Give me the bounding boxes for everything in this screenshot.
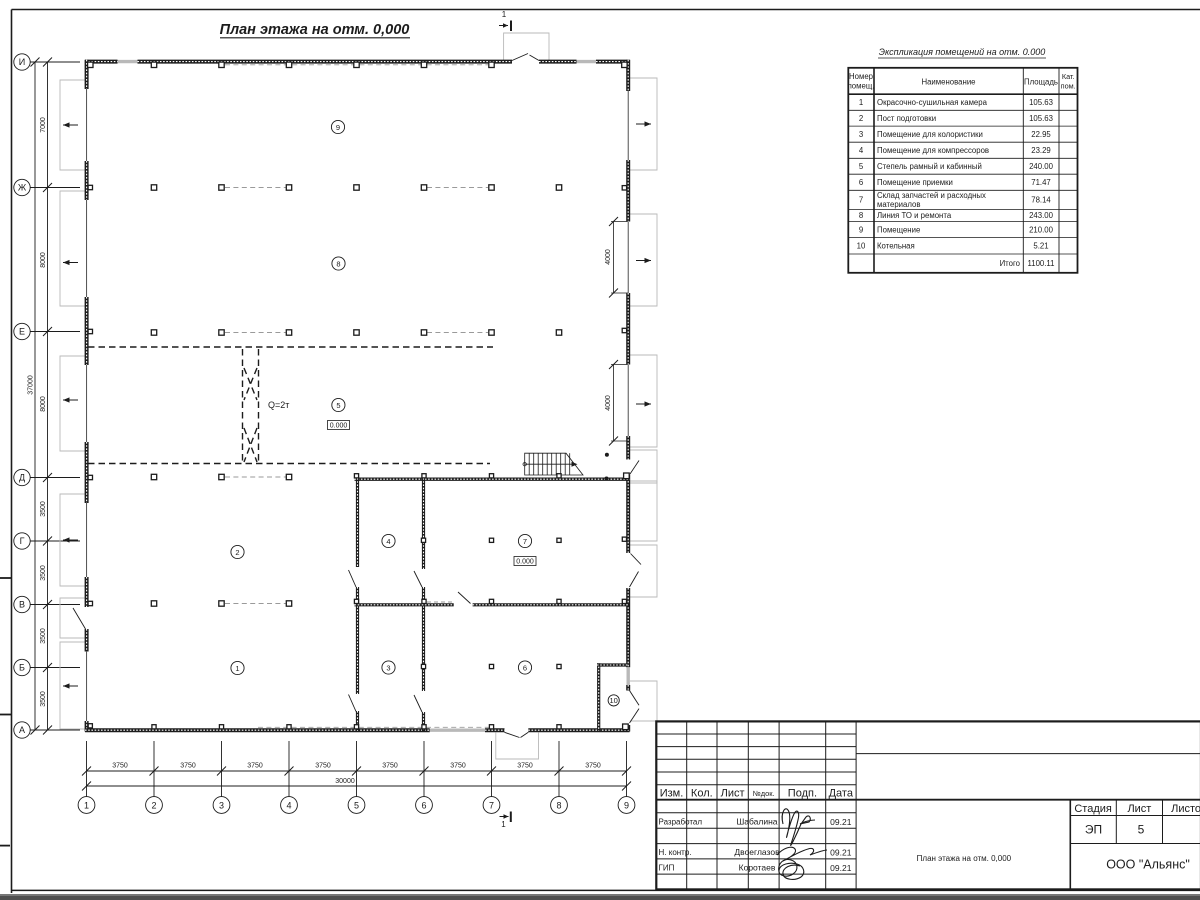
svg-text:5.21: 5.21 — [1033, 242, 1048, 251]
svg-text:материалов: материалов — [877, 200, 921, 209]
svg-text:3750: 3750 — [247, 763, 263, 770]
svg-text:Кол.: Кол. — [691, 788, 713, 800]
svg-text:ГИП: ГИП — [659, 863, 675, 872]
svg-text:Линия ТО и ремонта: Линия ТО и ремонта — [877, 211, 952, 220]
svg-text:105.63: 105.63 — [1029, 98, 1053, 107]
svg-text:1100.11: 1100.11 — [1027, 259, 1054, 268]
svg-text:3: 3 — [386, 663, 390, 672]
svg-text:Лист: Лист — [1127, 803, 1151, 815]
svg-text:3750: 3750 — [315, 763, 331, 770]
svg-text:План этажа на отм. 0,000: План этажа на отм. 0,000 — [917, 854, 1012, 863]
svg-text:3750: 3750 — [450, 763, 466, 770]
svg-text:Итого: Итого — [1000, 259, 1021, 268]
svg-text:3500: 3500 — [40, 565, 47, 581]
svg-text:Наименование: Наименование — [921, 78, 975, 87]
svg-text:ЭП: ЭП — [1085, 823, 1102, 837]
svg-text:3500: 3500 — [40, 691, 47, 707]
svg-text:Склад запчастей и расходных: Склад запчастей и расходных — [877, 191, 986, 200]
svg-text:2: 2 — [151, 800, 156, 810]
svg-text:30000: 30000 — [335, 778, 355, 785]
svg-text:Д: Д — [19, 473, 25, 483]
svg-text:1: 1 — [501, 820, 506, 829]
svg-text:помещ.: помещ. — [848, 82, 875, 91]
svg-text:9: 9 — [859, 225, 863, 234]
svg-text:78.14: 78.14 — [1031, 196, 1051, 205]
svg-text:5: 5 — [336, 401, 340, 410]
svg-text:6: 6 — [421, 800, 426, 810]
svg-text:Котельная: Котельная — [877, 242, 915, 251]
svg-text:7: 7 — [489, 800, 494, 810]
svg-text:Разработал: Разработал — [659, 817, 703, 826]
svg-text:5: 5 — [354, 800, 359, 810]
svg-text:243.00: 243.00 — [1029, 211, 1054, 220]
svg-text:И: И — [19, 57, 25, 67]
svg-text:Помещение: Помещение — [877, 225, 920, 234]
svg-text:Изм.: Изм. — [660, 788, 684, 800]
svg-text:6: 6 — [859, 178, 863, 187]
svg-text:240.00: 240.00 — [1029, 162, 1054, 171]
svg-text:Б: Б — [19, 663, 25, 673]
svg-text:3750: 3750 — [517, 763, 533, 770]
svg-text:23.29: 23.29 — [1031, 146, 1051, 155]
svg-text:Площадь: Площадь — [1024, 78, 1058, 87]
svg-text:Помещение приемки: Помещение приемки — [877, 178, 953, 187]
svg-text:4: 4 — [859, 146, 864, 155]
svg-text:6: 6 — [523, 663, 527, 672]
svg-text:210.00: 210.00 — [1029, 225, 1054, 234]
svg-text:7: 7 — [859, 196, 863, 205]
svg-text:4000: 4000 — [605, 395, 612, 411]
svg-text:5: 5 — [1138, 823, 1145, 837]
svg-text:Подп.: Подп. — [788, 788, 817, 800]
svg-text:пом.: пом. — [1061, 82, 1076, 91]
svg-text:09.21: 09.21 — [830, 848, 852, 858]
svg-text:Г: Г — [20, 536, 25, 546]
svg-text:Окрасочно-сушильная камера: Окрасочно-сушильная камера — [877, 98, 988, 107]
svg-text:09.21: 09.21 — [830, 863, 852, 873]
svg-text:0.000: 0.000 — [330, 423, 348, 430]
svg-text:Н. контр.: Н. контр. — [659, 848, 692, 857]
svg-text:4: 4 — [386, 537, 390, 546]
svg-text:37000: 37000 — [28, 375, 35, 395]
svg-text:В: В — [19, 600, 25, 610]
svg-text:План этажа на отм. 0,000: План этажа на отм. 0,000 — [220, 22, 410, 38]
svg-text:3500: 3500 — [40, 628, 47, 644]
svg-text:1: 1 — [235, 664, 239, 673]
svg-text:8000: 8000 — [40, 252, 47, 268]
svg-text:0.000: 0.000 — [516, 559, 534, 566]
svg-text:2: 2 — [235, 548, 239, 557]
svg-text:Дата: Дата — [829, 788, 854, 800]
svg-text:3: 3 — [859, 130, 863, 139]
svg-text:ООО "Альянс": ООО "Альянс" — [1106, 857, 1190, 871]
svg-text:22.95: 22.95 — [1031, 130, 1051, 139]
svg-text:3750: 3750 — [585, 763, 601, 770]
svg-text:5: 5 — [859, 162, 864, 171]
svg-text:1: 1 — [502, 10, 507, 19]
svg-text:3: 3 — [219, 800, 224, 810]
svg-text:Лист: Лист — [721, 788, 745, 800]
svg-text:Помещение для колористики: Помещение для колористики — [877, 130, 983, 139]
svg-text:Экспликация помещений на отм.: Экспликация помещений на отм. 0.000 — [879, 47, 1045, 57]
svg-text:3750: 3750 — [112, 763, 128, 770]
svg-text:Помещение для компрессоров: Помещение для компрессоров — [877, 146, 989, 155]
svg-text:8: 8 — [556, 800, 561, 810]
svg-text:7000: 7000 — [40, 117, 47, 133]
svg-text:8: 8 — [859, 211, 863, 220]
svg-text:А: А — [19, 725, 25, 735]
svg-text:8: 8 — [336, 259, 340, 268]
svg-text:09.21: 09.21 — [830, 817, 852, 827]
svg-text:8000: 8000 — [40, 396, 47, 412]
svg-text:2: 2 — [859, 114, 863, 123]
svg-text:1: 1 — [84, 800, 89, 810]
svg-text:Кат.: Кат. — [1062, 72, 1075, 81]
svg-text:10: 10 — [610, 696, 618, 705]
svg-text:7: 7 — [523, 537, 527, 546]
svg-text:4000: 4000 — [605, 249, 612, 265]
svg-text:Е: Е — [19, 327, 25, 337]
svg-text:Ж: Ж — [18, 183, 27, 193]
svg-text:№док.: №док. — [753, 789, 775, 798]
svg-text:Пост подготовки: Пост подготовки — [877, 114, 936, 123]
svg-text:71.47: 71.47 — [1031, 178, 1051, 187]
svg-text:3750: 3750 — [180, 763, 196, 770]
svg-text:Шабалина: Шабалина — [736, 816, 777, 826]
svg-text:9: 9 — [624, 800, 629, 810]
svg-text:Двоеглазов: Двоеглазов — [734, 847, 780, 857]
svg-text:3750: 3750 — [382, 763, 398, 770]
svg-text:10: 10 — [857, 242, 866, 251]
svg-text:Листов: Листов — [1171, 803, 1200, 815]
svg-text:Коротаев: Коротаев — [739, 862, 776, 872]
svg-text:Стадия: Стадия — [1074, 803, 1112, 815]
svg-text:Степель рамный и кабинный: Степель рамный и кабинный — [877, 162, 982, 171]
svg-text:Номер: Номер — [849, 72, 874, 81]
svg-text:9: 9 — [336, 123, 340, 132]
svg-text:1: 1 — [859, 98, 863, 107]
svg-text:105.63: 105.63 — [1029, 114, 1053, 123]
svg-text:4: 4 — [286, 800, 291, 810]
svg-text:Q=2т: Q=2т — [268, 400, 289, 410]
svg-text:3500: 3500 — [40, 501, 47, 517]
